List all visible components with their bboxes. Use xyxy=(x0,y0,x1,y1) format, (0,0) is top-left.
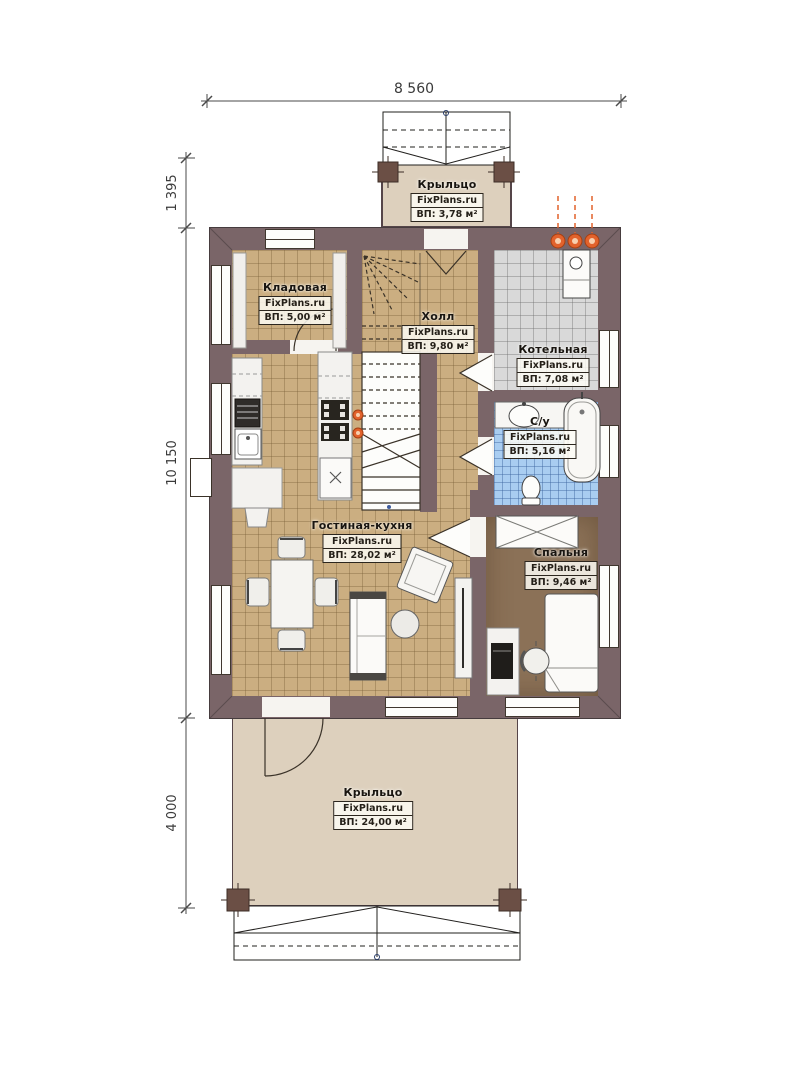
room-name: Спальня xyxy=(525,546,598,559)
dimension-top: 8 560 xyxy=(201,81,627,108)
bedroom-window-right xyxy=(599,565,619,648)
watermark-text: FixPlans.ru xyxy=(334,802,412,816)
room-name: Гостиная-кухня xyxy=(311,519,412,532)
dimension-main-value: 10 150 xyxy=(165,440,180,486)
floor-plan-canvas: 8 560 1 395 10 150 4 000 xyxy=(0,0,792,1080)
room-name: Кладовая xyxy=(259,281,332,294)
watermark-text: FixPlans.ru xyxy=(403,326,474,340)
dimension-left: 1 395 10 150 4 000 xyxy=(165,152,195,914)
wall-bath-bedroom xyxy=(478,505,598,517)
watermark-text: FixPlans.ru xyxy=(412,194,483,208)
room-info-box: FixPlans.ru ВП: 5,00 м² xyxy=(259,296,332,325)
wall-bedroom-west xyxy=(470,557,486,696)
room-area: ВП: 9,80 м² xyxy=(403,340,474,353)
room-area: ВП: 9,46 м² xyxy=(526,576,597,589)
wall-hall-east-a xyxy=(478,250,494,353)
boiler-window-right xyxy=(599,330,619,388)
room-area: ВП: 3,78 м² xyxy=(412,208,483,221)
wall-storage-east xyxy=(347,250,362,352)
watermark-text: FixPlans.ru xyxy=(260,297,331,311)
room-name: Крыльцо xyxy=(411,178,484,191)
wall-storage-south-right xyxy=(338,340,362,354)
watermark-text: FixPlans.ru xyxy=(526,562,597,576)
room-info-box: FixPlans.ru ВП: 24,00 м² xyxy=(333,801,413,830)
storage-window-top xyxy=(265,229,315,249)
watermark-text: FixPlans.ru xyxy=(323,535,401,549)
living-window-left xyxy=(211,585,231,675)
room-label-boiler: Котельная FixPlans.ru ВП: 7,08 м² xyxy=(517,343,590,387)
terrace-door-opening xyxy=(262,697,330,717)
living-window-bottom xyxy=(385,697,458,717)
room-label-hall: Холл FixPlans.ru ВП: 9,80 м² xyxy=(402,310,475,354)
room-label-porch-bottom: Крыльцо FixPlans.ru ВП: 24,00 м² xyxy=(333,786,413,830)
wall-bedroom-west-stub xyxy=(470,490,486,517)
room-info-box: FixPlans.ru ВП: 5,16 м² xyxy=(504,430,577,459)
wall-storage-south-left xyxy=(232,340,290,354)
room-area: ВП: 24,00 м² xyxy=(334,816,412,829)
room-info-box: FixPlans.ru ВП: 28,02 м² xyxy=(322,534,402,563)
dimension-porch-top-value: 1 395 xyxy=(165,174,180,211)
room-info-box: FixPlans.ru ВП: 3,78 м² xyxy=(411,193,484,222)
room-info-box: FixPlans.ru ВП: 9,80 м² xyxy=(402,325,475,354)
bedroom-door-opening xyxy=(470,517,486,557)
dimension-porch-bottom-value: 4 000 xyxy=(165,794,180,831)
wall-boiler-bath xyxy=(494,390,598,402)
room-name: С/у xyxy=(504,415,577,428)
bathroom-door-opening xyxy=(478,437,494,475)
bedroom-window-bottom xyxy=(505,697,580,717)
room-area: ВП: 28,02 м² xyxy=(323,549,401,562)
room-area: ВП: 5,16 м² xyxy=(505,445,576,458)
wall-stair-east xyxy=(420,352,437,512)
room-label-bedroom: Спальня FixPlans.ru ВП: 9,46 м² xyxy=(525,546,598,590)
kitchen-window-left xyxy=(211,383,231,455)
bedroom-floor xyxy=(486,517,598,696)
storage-window-left xyxy=(211,265,231,345)
room-area: ВП: 7,08 м² xyxy=(518,373,589,386)
room-info-box: FixPlans.ru ВП: 7,08 м² xyxy=(517,358,590,387)
room-label-storage: Кладовая FixPlans.ru ВП: 5,00 м² xyxy=(259,281,332,325)
storage-door-opening xyxy=(290,340,338,354)
entrance-door-opening xyxy=(424,229,468,249)
watermark-text: FixPlans.ru xyxy=(518,359,589,373)
room-area: ВП: 5,00 м² xyxy=(260,311,331,324)
room-label-porch-top: Крыльцо FixPlans.ru ВП: 3,78 м² xyxy=(411,178,484,222)
room-info-box: FixPlans.ru ВП: 9,46 м² xyxy=(525,561,598,590)
dimension-top-value: 8 560 xyxy=(394,81,434,97)
boiler-door-opening xyxy=(478,353,494,391)
deck-top-steps xyxy=(383,111,510,166)
room-name: Холл xyxy=(402,310,475,323)
deck-bottom-steps xyxy=(234,906,520,960)
room-label-bathroom: С/у FixPlans.ru ВП: 5,16 м² xyxy=(504,415,577,459)
room-name: Котельная xyxy=(517,343,590,356)
wall-hall-east-b xyxy=(478,391,494,437)
bathroom-window-right xyxy=(599,425,619,478)
room-label-living-kitchen: Гостиная-кухня FixPlans.ru ВП: 28,02 м² xyxy=(311,519,412,563)
chimney xyxy=(190,458,212,497)
room-name: Крыльцо xyxy=(333,786,413,799)
watermark-text: FixPlans.ru xyxy=(505,431,576,445)
